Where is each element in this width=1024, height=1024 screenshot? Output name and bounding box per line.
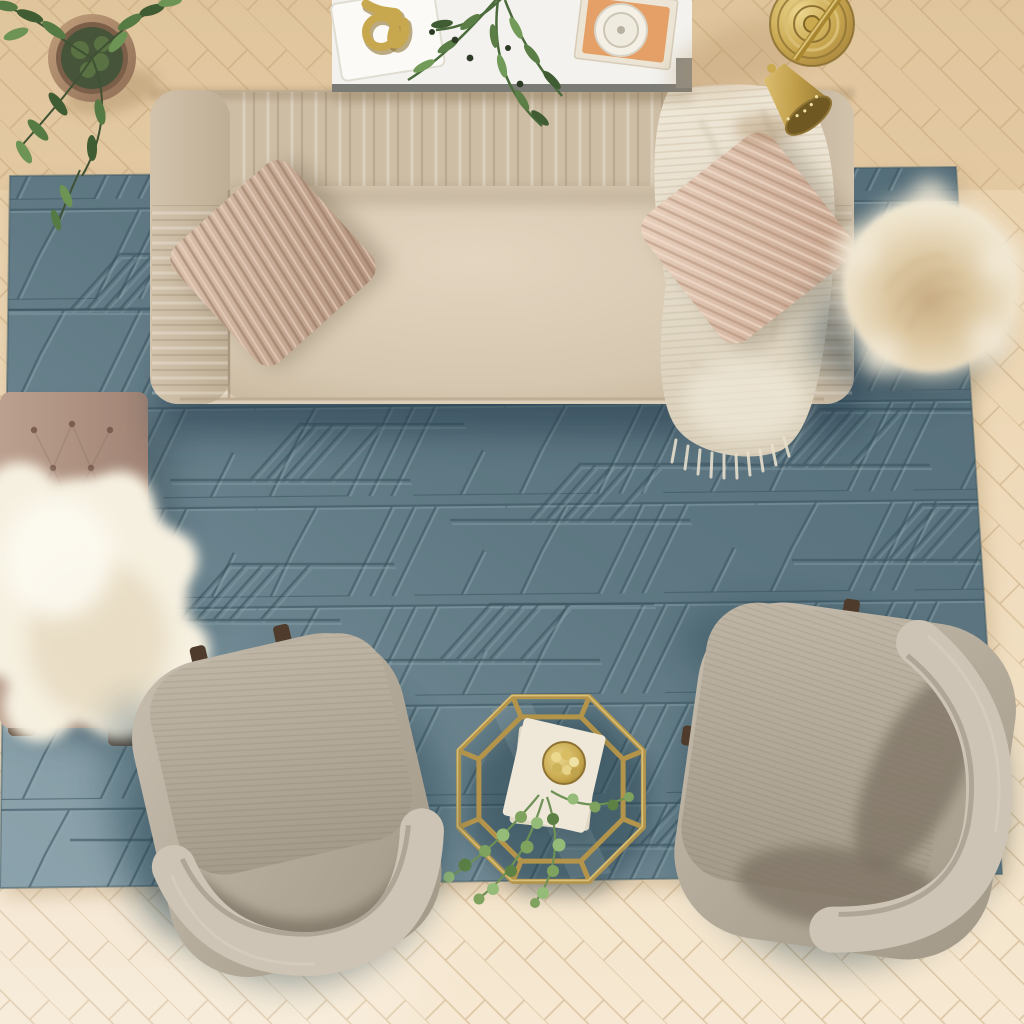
candle-wick: [617, 26, 625, 34]
stacked-books-with-candle: [574, 0, 678, 70]
brass-candy-bowl: [543, 742, 585, 784]
living-room-photo: Top-down view of a staged living room: a…: [0, 0, 1024, 1024]
scene: [0, 0, 1024, 1024]
